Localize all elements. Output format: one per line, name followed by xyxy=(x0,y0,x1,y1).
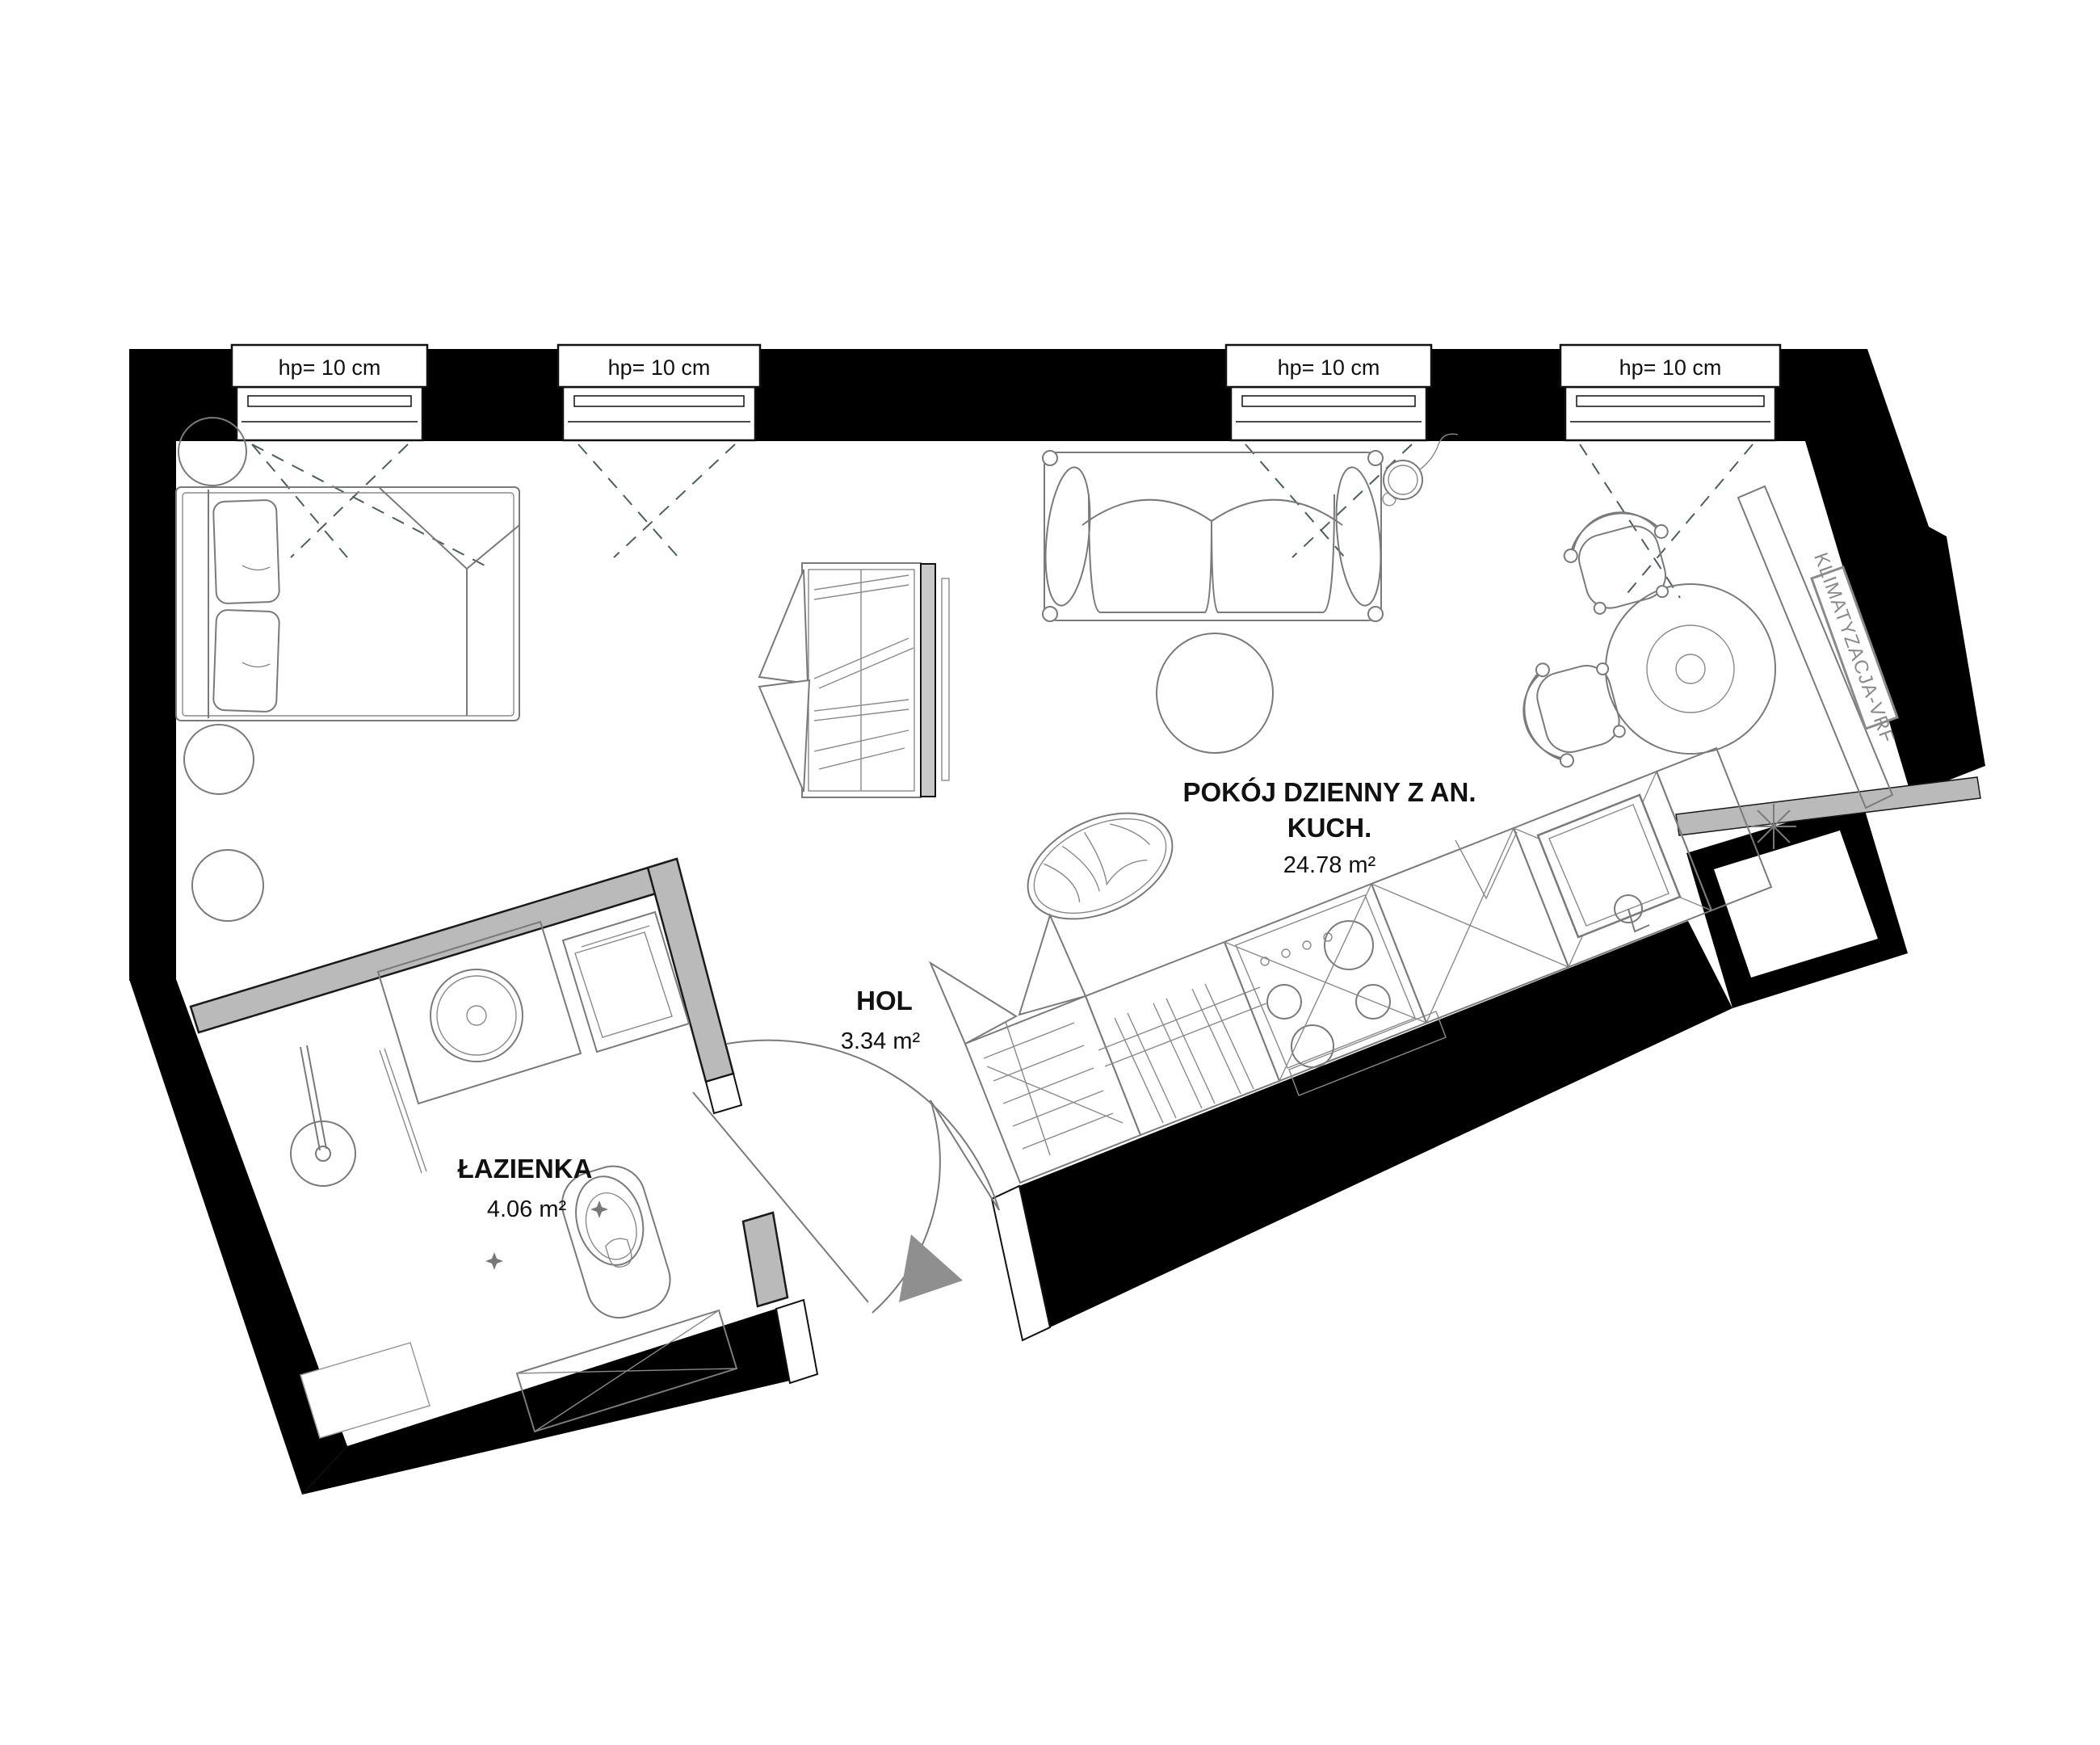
plant-circle-mid xyxy=(184,725,254,794)
entrance-door-arc xyxy=(727,1041,999,1210)
beanbag-chair xyxy=(1011,792,1189,940)
window-2: hp= 10 cm xyxy=(558,345,760,557)
bathroom-name: ŁAZIENKA xyxy=(458,1154,593,1184)
sofa xyxy=(1039,451,1387,621)
window-label: hp= 10 cm xyxy=(279,355,381,380)
window-4: hp= 10 cm xyxy=(1560,345,1780,598)
window-label: hp= 10 cm xyxy=(1619,355,1722,380)
wardrobe-tv-unit xyxy=(759,563,949,797)
living-room-name-line1: POKÓJ DZIENNY Z AN. xyxy=(1182,777,1476,807)
living-room-area: 24.78 m² xyxy=(1283,852,1376,878)
dining-table xyxy=(1606,584,1775,754)
window-3: hp= 10 cm xyxy=(1226,345,1431,557)
window-label: hp= 10 cm xyxy=(1278,355,1380,380)
plant-circle-bottom xyxy=(192,850,263,921)
floor-plan-page: hp= 10 cm hp= 10 cm hp= 10 cm hp xyxy=(0,0,2100,1745)
entrance-marker-icon xyxy=(899,1234,963,1302)
dining-chair-2 xyxy=(1511,647,1630,775)
living-room-name-line2: KUCH. xyxy=(1287,813,1372,843)
exterior-walls xyxy=(129,349,1985,1495)
sparkle-icon xyxy=(590,1200,608,1218)
entrance xyxy=(693,1041,999,1313)
dining-chair-1 xyxy=(1556,500,1684,619)
snowflake-icon xyxy=(1751,804,1796,849)
bathroom-area: 4.06 m² xyxy=(487,1196,567,1222)
shower xyxy=(291,1045,426,1186)
hall-wardrobe xyxy=(930,915,1140,1183)
tv-panel xyxy=(921,564,935,797)
floor-plan-canvas: hp= 10 cm hp= 10 cm hp= 10 cm hp xyxy=(0,0,2100,1745)
hall-area: 3.34 m² xyxy=(841,1028,921,1054)
window-label: hp= 10 cm xyxy=(608,355,711,380)
hall-name: HOL xyxy=(856,986,913,1015)
pouf xyxy=(1157,633,1273,753)
sparkle-icon xyxy=(485,1252,503,1270)
floor-lamp xyxy=(1383,434,1458,506)
shower-glass xyxy=(380,1049,426,1173)
bed xyxy=(176,487,519,721)
